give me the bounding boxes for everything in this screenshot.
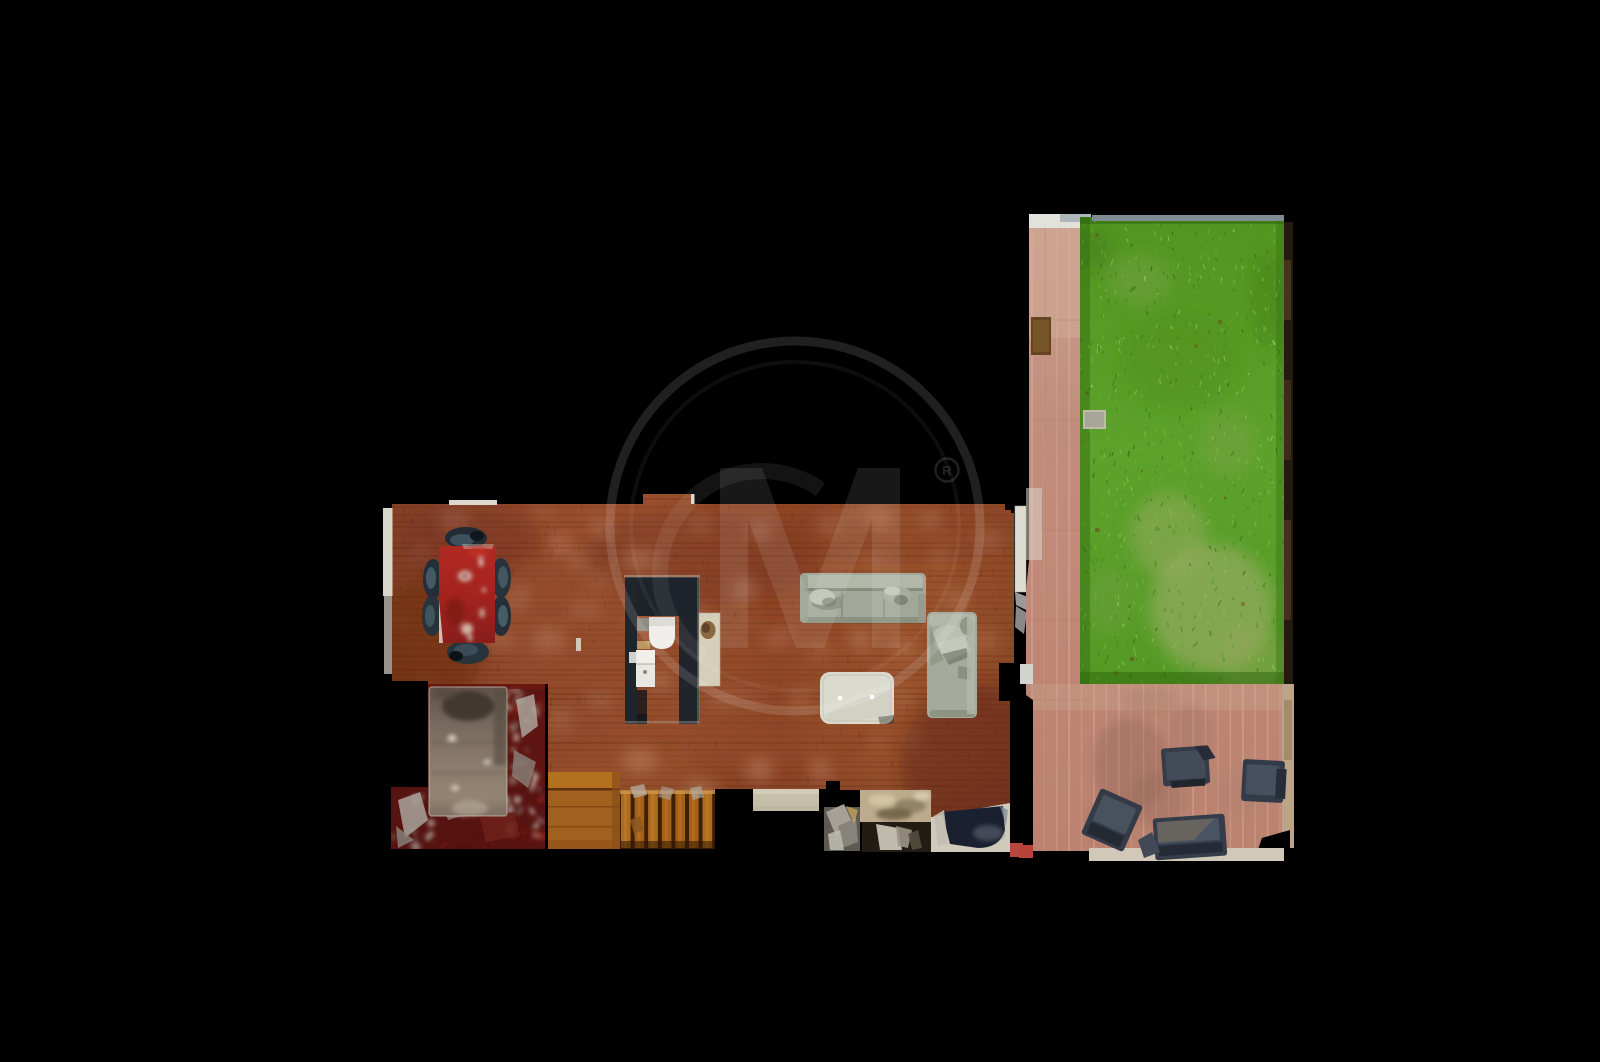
svg-text:R: R	[942, 463, 952, 478]
